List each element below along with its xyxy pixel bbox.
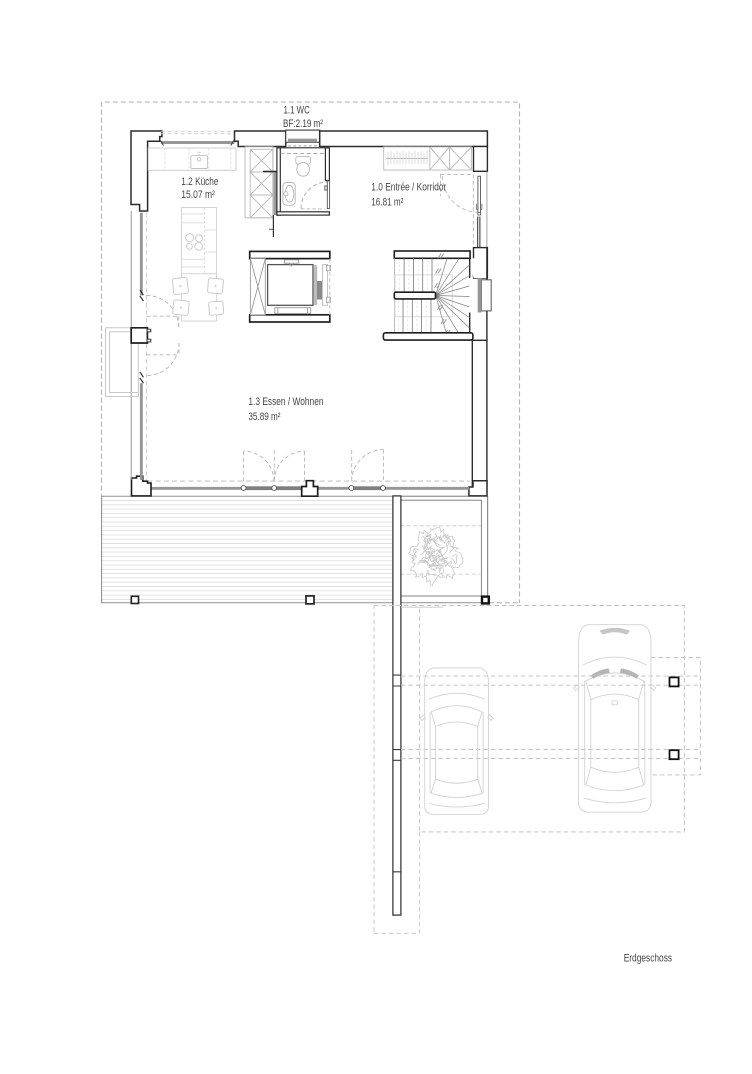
svg-text:BF:2.19 m²: BF:2.19 m² <box>283 118 323 130</box>
svg-text:15.07 m²: 15.07 m² <box>181 189 215 201</box>
svg-text:1.1 WC: 1.1 WC <box>284 104 311 116</box>
svg-text:16.81 m²: 16.81 m² <box>371 197 403 209</box>
svg-text:1.3 Essen / Wohnen: 1.3 Essen / Wohnen <box>248 396 323 408</box>
svg-text:1.2 Küche: 1.2 Küche <box>181 176 218 188</box>
svg-text:1.0 Entrée / Korridor: 1.0 Entrée / Korridor <box>371 182 446 194</box>
svg-text:35.89 m²: 35.89 m² <box>248 411 280 423</box>
svg-text:Erdgeschoss: Erdgeschoss <box>624 953 673 965</box>
